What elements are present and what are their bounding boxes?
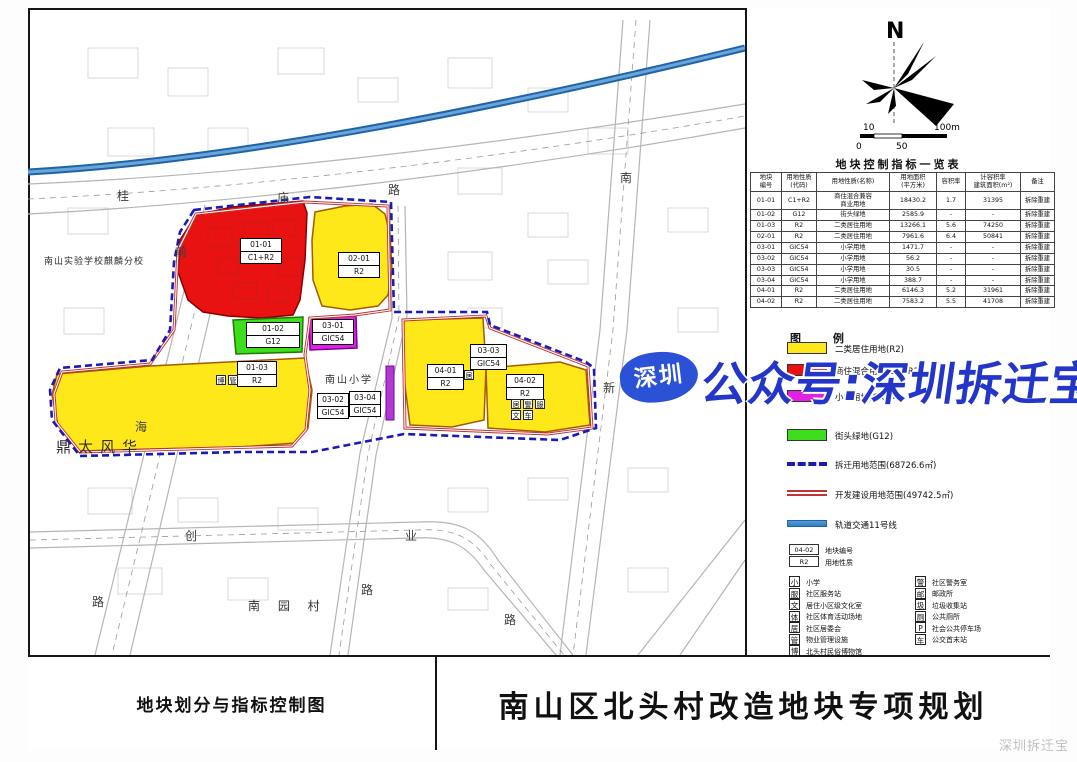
table-cell: 388.7 <box>890 275 937 286</box>
facility-legend-label: 社会公共停车场 <box>932 624 981 634</box>
table-cell: 二类居住用地 <box>817 286 890 297</box>
table-cell: 50841 <box>966 232 1021 243</box>
legend-swatch <box>787 342 827 354</box>
post-office-icon: 邮 <box>915 588 926 599</box>
table-row: 03-02GIC54小学用地56.2--拆除重建 <box>751 253 1055 264</box>
table-cell: 街头绿地 <box>817 210 890 221</box>
plot-label-04-02: 04-02R2 <box>506 374 544 400</box>
plot-sliver-purple <box>386 366 394 420</box>
facility-mark-icon: 服 <box>535 399 545 409</box>
plot-label-04-01: 04-01R2 <box>427 364 464 390</box>
table-cell: 74250 <box>966 221 1021 232</box>
table-title: 地块控制指标一览表 <box>747 156 1050 172</box>
table-cell: 拆除重建 <box>1021 210 1055 221</box>
table-cell: 拆除重建 <box>1021 221 1055 232</box>
facility-legend-label: 邮政所 <box>932 589 953 599</box>
road-name-char: 海 <box>135 421 147 433</box>
table-cell: 小学用地 <box>817 243 890 254</box>
plot-label-03-03: 03-03GIC54 <box>470 344 507 370</box>
table-cell: 31395 <box>966 191 1021 210</box>
plot-use: R2 <box>507 388 543 400</box>
place-label: 南 园 村 <box>248 600 327 612</box>
place-label: 南山小学 <box>325 376 373 386</box>
facility-legend-label: 居住小区级文化室 <box>806 601 862 611</box>
table-cell: R2 <box>782 297 817 308</box>
table-cell: 03-01 <box>751 243 782 254</box>
north-label: N <box>886 19 904 44</box>
table-cell: 5.2 <box>937 286 966 297</box>
plot-use: GIC54 <box>471 358 506 370</box>
legend-swatch <box>787 390 827 402</box>
legend-label: 开发建设用地范围(49742.5㎡) <box>835 489 953 501</box>
table-cell: GIC54 <box>782 243 817 254</box>
table-cell: 6.4 <box>937 232 966 243</box>
table-cell: 56.2 <box>890 253 937 264</box>
table-cell: - <box>966 275 1021 286</box>
legend-swatch <box>787 429 827 441</box>
legend-label: 轨道交通11号线 <box>835 519 897 531</box>
table-cell: R2 <box>782 286 817 297</box>
plot-use: GIC54 <box>318 407 348 419</box>
table-row: 01-01C1+R2商住混合兼容 商业用地18430.21.731395拆除重建 <box>751 191 1055 210</box>
place-label: 鼎太风华 <box>56 440 144 455</box>
plot-label-02-01: 02-01R2 <box>338 252 380 278</box>
community-service-station-icon: 服 <box>789 588 800 599</box>
table-cell: 2585.9 <box>890 210 937 221</box>
public-parking-icon: P <box>915 622 926 633</box>
table-cell: 拆除重建 <box>1021 275 1055 286</box>
table-cell: 18430.2 <box>890 191 937 210</box>
scale-tick-50: 50 <box>896 142 908 152</box>
table-cell: 二类居住用地 <box>817 232 890 243</box>
table-cell: - <box>937 275 966 286</box>
facility-mark-icon: 居 <box>464 370 474 380</box>
scale-bar: 10 100m 0 50 <box>856 123 960 152</box>
table-cell: 04-01 <box>751 286 782 297</box>
plot-label-01-01: 01-01C1+R2 <box>240 238 282 264</box>
legend-swatch <box>787 490 827 496</box>
plot-use: C1+R2 <box>241 252 281 264</box>
table-cell: 商住混合兼容 商业用地 <box>817 191 890 210</box>
table-cell: 01-01 <box>751 191 782 210</box>
table-cell: 拆除重建 <box>1021 253 1055 264</box>
legend-label: 商住混合用地(C1+R2) <box>835 365 922 377</box>
table-cell: 03-04 <box>751 275 782 286</box>
table-cell: G12 <box>782 210 817 221</box>
table-cell: 01-02 <box>751 210 782 221</box>
table-cell: - <box>937 243 966 254</box>
plot-code: 04-01 <box>428 365 463 378</box>
facility-legend-label: 垃圾收集站 <box>932 601 967 611</box>
plot-label-03-01: 03-01GIC54 <box>312 319 354 345</box>
plot-label-03-02: 03-02GIC54 <box>317 393 349 419</box>
project-title: 南山区北头村改造地块专项规划 <box>437 657 1050 750</box>
road-name-char: 前 <box>175 246 187 258</box>
facility-mark-icon: 管 <box>228 375 238 385</box>
table-cell: GIC54 <box>782 264 817 275</box>
table-cell: 拆除重建 <box>1021 264 1055 275</box>
plot-code: 01-02 <box>247 323 299 336</box>
table-row: 04-01R2二类居住用地6146.35.231961拆除重建 <box>751 286 1055 297</box>
residents-committee-icon: 居 <box>789 622 800 633</box>
primary-school-icon: 小 <box>789 576 800 587</box>
table-cell: 拆除重建 <box>1021 191 1055 210</box>
table-cell: 04-02 <box>751 297 782 308</box>
road-name-char: 路 <box>92 596 104 608</box>
table-cell: 5.5 <box>937 297 966 308</box>
north-arrow-and-scale: N 10 100m 0 50 <box>802 14 992 154</box>
table-cell: 小学用地 <box>817 264 890 275</box>
table-cell: R2 <box>782 232 817 243</box>
garbage-collection-icon: 圾 <box>915 599 926 610</box>
facility-legend-label: 小学 <box>806 578 820 588</box>
table-row: 01-03R2二类居住用地13266.15.674250拆除重建 <box>751 221 1055 232</box>
road-centerlines <box>28 20 745 655</box>
sample-plot-code-box: 04-02 <box>789 544 819 555</box>
table-cell: - <box>966 253 1021 264</box>
table-cell: GIC54 <box>782 253 817 264</box>
facility-legend-label: 公共厕所 <box>932 612 960 622</box>
table-cell: - <box>966 243 1021 254</box>
table-body: 01-01C1+R2商住混合兼容 商业用地18430.21.731395拆除重建… <box>751 191 1055 307</box>
table-cell: 03-02 <box>751 253 782 264</box>
table-cell: 小学用地 <box>817 253 890 264</box>
table-cell: 13266.1 <box>890 221 937 232</box>
facility-legend-label: 物业管理设施 <box>806 635 848 645</box>
table-cell: 二类居住用地 <box>817 297 890 308</box>
road-name-char: 桂 <box>117 190 129 202</box>
facility-legend-label: 社区警务室 <box>932 578 967 588</box>
table-col-header: 地块 编号 <box>751 173 782 192</box>
legend-label: 小学用地(GIC54) <box>835 391 901 403</box>
table-row: 03-03GIC54小学用地30.5--拆除重建 <box>751 264 1055 275</box>
table-cell: 二类居住用地 <box>817 221 890 232</box>
plot-use: R2 <box>428 378 463 390</box>
sports-ground-icon: 体 <box>789 611 800 622</box>
scale-tick-100m: 100m <box>934 123 960 133</box>
facility-mark-icon: 居 <box>511 399 521 409</box>
facility-legend-label: 公交首末站 <box>932 635 967 645</box>
table-cell: 1471.7 <box>890 243 937 254</box>
road-name-char: 南 <box>620 172 632 184</box>
table-row: 02-01R2二类居住用地7961.66.450841拆除重建 <box>751 232 1055 243</box>
plan-map: 01-01C1+R202-01R201-02G1203-01GIC5401-03… <box>28 8 745 655</box>
title-block: 地块划分与指标控制图 南山区北头村改造地块专项规划 <box>28 655 1050 750</box>
road-name-char: 路 <box>388 184 400 196</box>
table-col-header: 容积率 <box>937 173 966 192</box>
table-cell: 7961.6 <box>890 232 937 243</box>
metro-line-11-casing <box>28 48 745 172</box>
bus-terminus-icon: 车 <box>915 634 926 645</box>
plot-code: 04-02 <box>507 375 543 388</box>
sample-plot-code-label: 地块编号 <box>825 546 853 556</box>
scale-tick-10: 10 <box>863 123 875 133</box>
plot-use: R2 <box>238 375 276 387</box>
table-col-header: 用地性质(名称) <box>817 173 890 192</box>
table-row: 03-01GIC54小学用地1471.7--拆除重建 <box>751 243 1055 254</box>
property-management-icon: 管 <box>789 634 800 645</box>
table-cell: 30.5 <box>890 264 937 275</box>
road-name-char: 庙 <box>277 192 289 204</box>
culture-room-icon: 文 <box>789 599 800 610</box>
plot-use: R2 <box>339 266 379 278</box>
map-drawing <box>28 8 745 655</box>
road-name-char: 新 <box>603 382 615 394</box>
sample-land-use-label: 用地性质 <box>825 558 853 568</box>
table-cell: - <box>937 264 966 275</box>
table-cell: 01-03 <box>751 221 782 232</box>
plot-use: GIC54 <box>313 333 353 345</box>
plot-code: 01-01 <box>241 239 281 252</box>
table-cell: 5.6 <box>937 221 966 232</box>
road-name-char: 业 <box>405 530 417 542</box>
plot-use: GIC54 <box>350 405 380 417</box>
plot-label-03-04: 03-04GIC54 <box>349 391 381 417</box>
table-cell: GIC54 <box>782 275 817 286</box>
table-col-header: 用地面积 (平方米) <box>890 173 937 192</box>
scale-tick-0: 0 <box>856 142 862 152</box>
table-cell: 拆除重建 <box>1021 297 1055 308</box>
table-cell: C1+R2 <box>782 191 817 210</box>
building-footprints <box>64 48 718 610</box>
table-cell: R2 <box>782 221 817 232</box>
plot-control-table: 地块 编号用地性质 (代码)用地性质(名称)用地面积 (平方米)容积率计容积率 … <box>750 172 1055 308</box>
table-cell: 小学用地 <box>817 275 890 286</box>
sample-land-use-box: R2 <box>789 556 819 567</box>
facility-legend-label: 社区体育活动场地 <box>806 612 862 622</box>
road-name-char: 路 <box>504 614 516 626</box>
facility-legend-label: 社区服务站 <box>806 589 841 599</box>
table-cell: - <box>937 253 966 264</box>
table-cell: 拆除重建 <box>1021 286 1055 297</box>
table-cell: 02-01 <box>751 232 782 243</box>
plot-code: 03-02 <box>318 394 348 407</box>
road-name-char: 创 <box>185 530 197 542</box>
road-network <box>28 20 745 655</box>
table-cell: - <box>937 210 966 221</box>
plot-code: 03-03 <box>471 345 506 358</box>
table-cell: 31961 <box>966 286 1021 297</box>
facility-mark-icon: 车 <box>523 410 533 420</box>
table-cell: 6146.3 <box>890 286 937 297</box>
legend-swatch <box>787 364 827 376</box>
plot-label-01-02: 01-02G12 <box>246 322 300 348</box>
metro-line-11 <box>28 48 745 172</box>
table-header: 地块 编号用地性质 (代码)用地性质(名称)用地面积 (平方米)容积率计容积率 … <box>751 173 1055 192</box>
table-col-header: 用地性质 (代码) <box>782 173 817 192</box>
drawing-name: 地块划分与指标控制图 <box>28 657 437 750</box>
table-cell: 1.7 <box>937 191 966 210</box>
facility-mark-icon: 警 <box>523 399 533 409</box>
facility-mark-icon: 文 <box>511 410 521 420</box>
table-cell: 拆除重建 <box>1021 232 1055 243</box>
community-police-icon: 警 <box>915 576 926 587</box>
legend-label: 街头绿地(G12) <box>835 430 893 442</box>
table-cell: 03-03 <box>751 264 782 275</box>
table-cell: 41708 <box>966 297 1021 308</box>
side-panel: N 10 100m 0 50 地块控制指标一览表 地块 编号用地性质 (代码)用… <box>745 8 1050 655</box>
table-col-header: 计容积率 建筑面积(m²) <box>966 173 1021 192</box>
facility-legend-label: 社区居委会 <box>806 624 841 634</box>
table-row: 03-04GIC54小学用地388.7--拆除重建 <box>751 275 1055 286</box>
facility-mark-icon: 博 <box>216 375 226 385</box>
plot-code: 03-04 <box>350 392 380 405</box>
plot-code: 02-01 <box>339 253 379 266</box>
place-label: 南山实验学校麒麟分校 <box>44 258 144 267</box>
legend-swatch <box>787 462 827 466</box>
table-row: 01-02G12街头绿地2585.9--拆除重建 <box>751 210 1055 221</box>
road-name-char: 路 <box>361 584 373 596</box>
plot-code: 03-01 <box>313 320 353 333</box>
legend-swatch <box>787 520 827 527</box>
public-toilet-icon: 厕 <box>915 611 926 622</box>
table-cell: 拆除重建 <box>1021 243 1055 254</box>
table-cell: 7583.2 <box>890 297 937 308</box>
legend-label: 拆迁用地范围(68726.6㎡) <box>835 459 936 471</box>
legend-label: 二类居住用地(R2) <box>835 343 904 355</box>
table-cell: - <box>966 264 1021 275</box>
compass-rose-icon <box>862 42 954 126</box>
plot-use: G12 <box>247 336 299 348</box>
table-cell: - <box>966 210 1021 221</box>
table-col-header: 备注 <box>1021 173 1055 192</box>
plot-code: 01-03 <box>238 362 276 375</box>
plot-label-01-03: 01-03R2 <box>237 361 277 387</box>
table-row: 04-02R2二类居住用地7583.25.541708拆除重建 <box>751 297 1055 308</box>
